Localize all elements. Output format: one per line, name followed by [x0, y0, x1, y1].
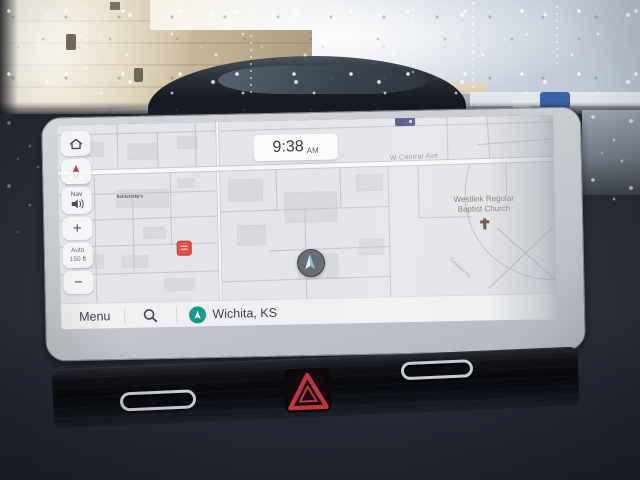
compass-button[interactable] [61, 159, 92, 185]
rain-streak [412, 8, 414, 78]
vehicle-position-icon [297, 249, 326, 278]
poi-label: Schlotzsky's [117, 194, 144, 200]
hazard-button[interactable] [284, 367, 332, 413]
rain-streak [250, 0, 252, 95]
home-icon [68, 136, 83, 150]
zoom-out-button[interactable]: − [63, 271, 93, 295]
location-text: Wichita, KS [212, 306, 277, 321]
zoom-mode-label: Auto [70, 246, 86, 255]
red-poi-icon[interactable] [177, 241, 192, 256]
cross-icon [483, 218, 486, 229]
infotainment-display[interactable]: W Central Ave Cowskin Ck Schlotzsky's We… [57, 115, 557, 329]
rain-streak [472, 2, 474, 90]
zoom-level-button[interactable]: Auto 150 ft [63, 243, 94, 269]
hazard-triangle-icon [285, 368, 331, 412]
vent-slot [120, 389, 197, 411]
compass-arrow-icon [189, 306, 206, 323]
rain-streak [85, 4, 87, 84]
map-sidebar: Nav + Auto 150 ft [60, 131, 93, 295]
nav-map[interactable]: W Central Ave Cowskin Ck Schlotzsky's We… [57, 115, 557, 303]
cabin-photo: W Central Ave Cowskin Ck Schlotzsky's We… [0, 0, 640, 480]
zoom-in-label: + [73, 221, 82, 236]
vent-slot [401, 359, 474, 380]
search-button[interactable] [125, 307, 176, 323]
church-poi[interactable]: Westlink Regular Baptist Church [421, 193, 548, 230]
zoom-scale-label: 150 ft [70, 255, 86, 264]
nav-volume-label: Nav [71, 192, 83, 199]
nav-volume-button[interactable]: Nav [61, 187, 92, 215]
magnifier-icon [143, 308, 158, 323]
infotainment-console: W Central Ave Cowskin Ck Schlotzsky's We… [35, 100, 591, 421]
zoom-in-button[interactable]: + [62, 217, 92, 241]
screen-housing: W Central Ave Cowskin Ck Schlotzsky's We… [41, 106, 586, 361]
church-name-line2: Baptist Church [421, 203, 547, 216]
menu-button[interactable]: Menu [61, 309, 125, 324]
compass-needle-icon [69, 163, 83, 180]
clock: 9:38 AM [253, 133, 338, 161]
home-button[interactable] [60, 131, 91, 157]
zoom-out-label: − [74, 275, 83, 290]
rain-streak [556, 6, 558, 66]
status-badge [395, 118, 415, 126]
rain-droplets [584, 106, 640, 221]
speaker-icon [70, 199, 83, 209]
clock-time: 9:38 [272, 138, 304, 157]
clock-meridiem: AM [307, 145, 319, 154]
current-location[interactable]: Wichita, KS [177, 304, 277, 323]
